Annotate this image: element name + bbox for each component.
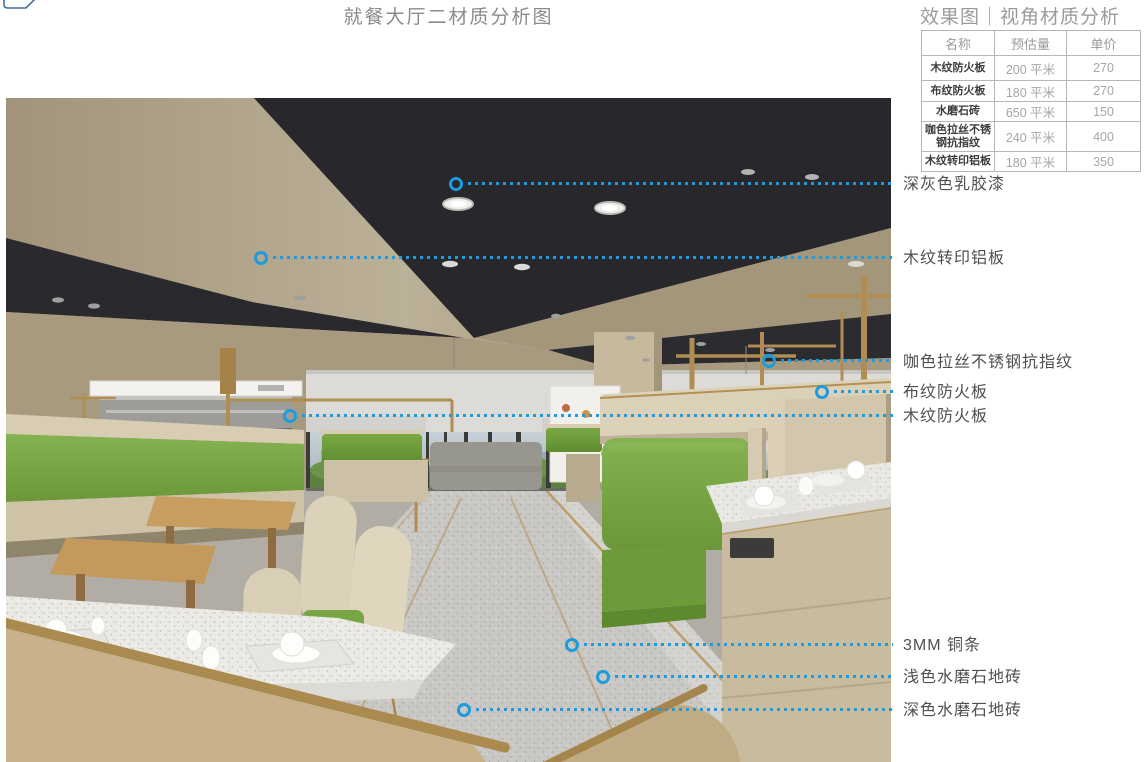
material-name: 布纹防火板 xyxy=(922,81,995,102)
material-name: 木纹防火板 xyxy=(922,56,995,81)
panel-title: 效果图｜视角材质分析 xyxy=(920,2,1120,29)
material-qty: 180 平米 xyxy=(995,152,1067,172)
material-marker xyxy=(762,354,776,368)
table-row: 咖色拉丝不锈钢抗指纹 240 平米 400 xyxy=(922,122,1141,152)
material-label: 3MM 铜条 xyxy=(903,637,981,655)
material-price: 270 xyxy=(1067,56,1141,81)
material-marker xyxy=(815,385,829,399)
material-marker xyxy=(565,638,579,652)
material-name: 木纹转印铝板 xyxy=(922,152,995,172)
material-name: 咖色拉丝不锈钢抗指纹 xyxy=(922,122,995,152)
table-row: 布纹防火板 180 平米 270 xyxy=(922,81,1141,102)
material-label: 布纹防火板 xyxy=(903,384,988,402)
interior-rendering xyxy=(6,98,891,762)
table-row: 木纹防火板 200 平米 270 xyxy=(922,56,1141,81)
material-qty: 240 平米 xyxy=(995,122,1067,152)
material-analysis-board: 就餐大厅二材质分析图 效果图｜视角材质分析 名称 预估量 单价 木纹防火板 20… xyxy=(0,0,1144,762)
material-qty: 200 平米 xyxy=(995,56,1067,81)
column-header-price: 单价 xyxy=(1067,31,1141,56)
material-marker xyxy=(449,177,463,191)
material-qty: 650 平米 xyxy=(995,102,1067,122)
material-label: 深色水磨石地砖 xyxy=(903,702,1022,720)
material-label: 咖色拉丝不锈钢抗指纹 xyxy=(903,354,1073,372)
leader-line xyxy=(615,675,893,678)
table-row: 水磨石砖 650 平米 150 xyxy=(922,102,1141,122)
material-price: 150 xyxy=(1067,102,1141,122)
table-row: 木纹转印铝板 180 平米 350 xyxy=(922,152,1141,172)
column-header-name: 名称 xyxy=(922,31,995,56)
material-marker xyxy=(254,251,268,265)
material-label: 浅色水磨石地砖 xyxy=(903,669,1022,687)
page-title: 就餐大厅二材质分析图 xyxy=(6,2,891,29)
leader-line xyxy=(273,256,893,259)
leader-line xyxy=(302,414,893,417)
material-label: 木纹转印铝板 xyxy=(903,250,1005,268)
material-marker xyxy=(283,409,297,423)
right-table xyxy=(706,461,891,762)
material-label: 深灰色乳胶漆 xyxy=(903,176,1005,194)
table-header-row: 名称 预估量 单价 xyxy=(922,31,1141,56)
material-qty: 180 平米 xyxy=(995,81,1067,102)
leader-line xyxy=(468,182,893,185)
materials-table: 名称 预估量 单价 木纹防火板 200 平米 270 布纹防火板 180 平米 … xyxy=(921,30,1141,172)
material-marker xyxy=(457,703,471,717)
material-marker xyxy=(596,670,610,684)
material-price: 400 xyxy=(1067,122,1141,152)
material-price: 350 xyxy=(1067,152,1141,172)
leader-line xyxy=(584,643,893,646)
material-label: 木纹防火板 xyxy=(903,408,988,426)
leader-line xyxy=(834,390,893,393)
leader-line xyxy=(781,359,893,362)
leader-line xyxy=(476,708,893,711)
column-header-qty: 预估量 xyxy=(995,31,1067,56)
left-booths xyxy=(6,414,304,558)
material-name: 水磨石砖 xyxy=(922,102,995,122)
material-price: 270 xyxy=(1067,81,1141,102)
